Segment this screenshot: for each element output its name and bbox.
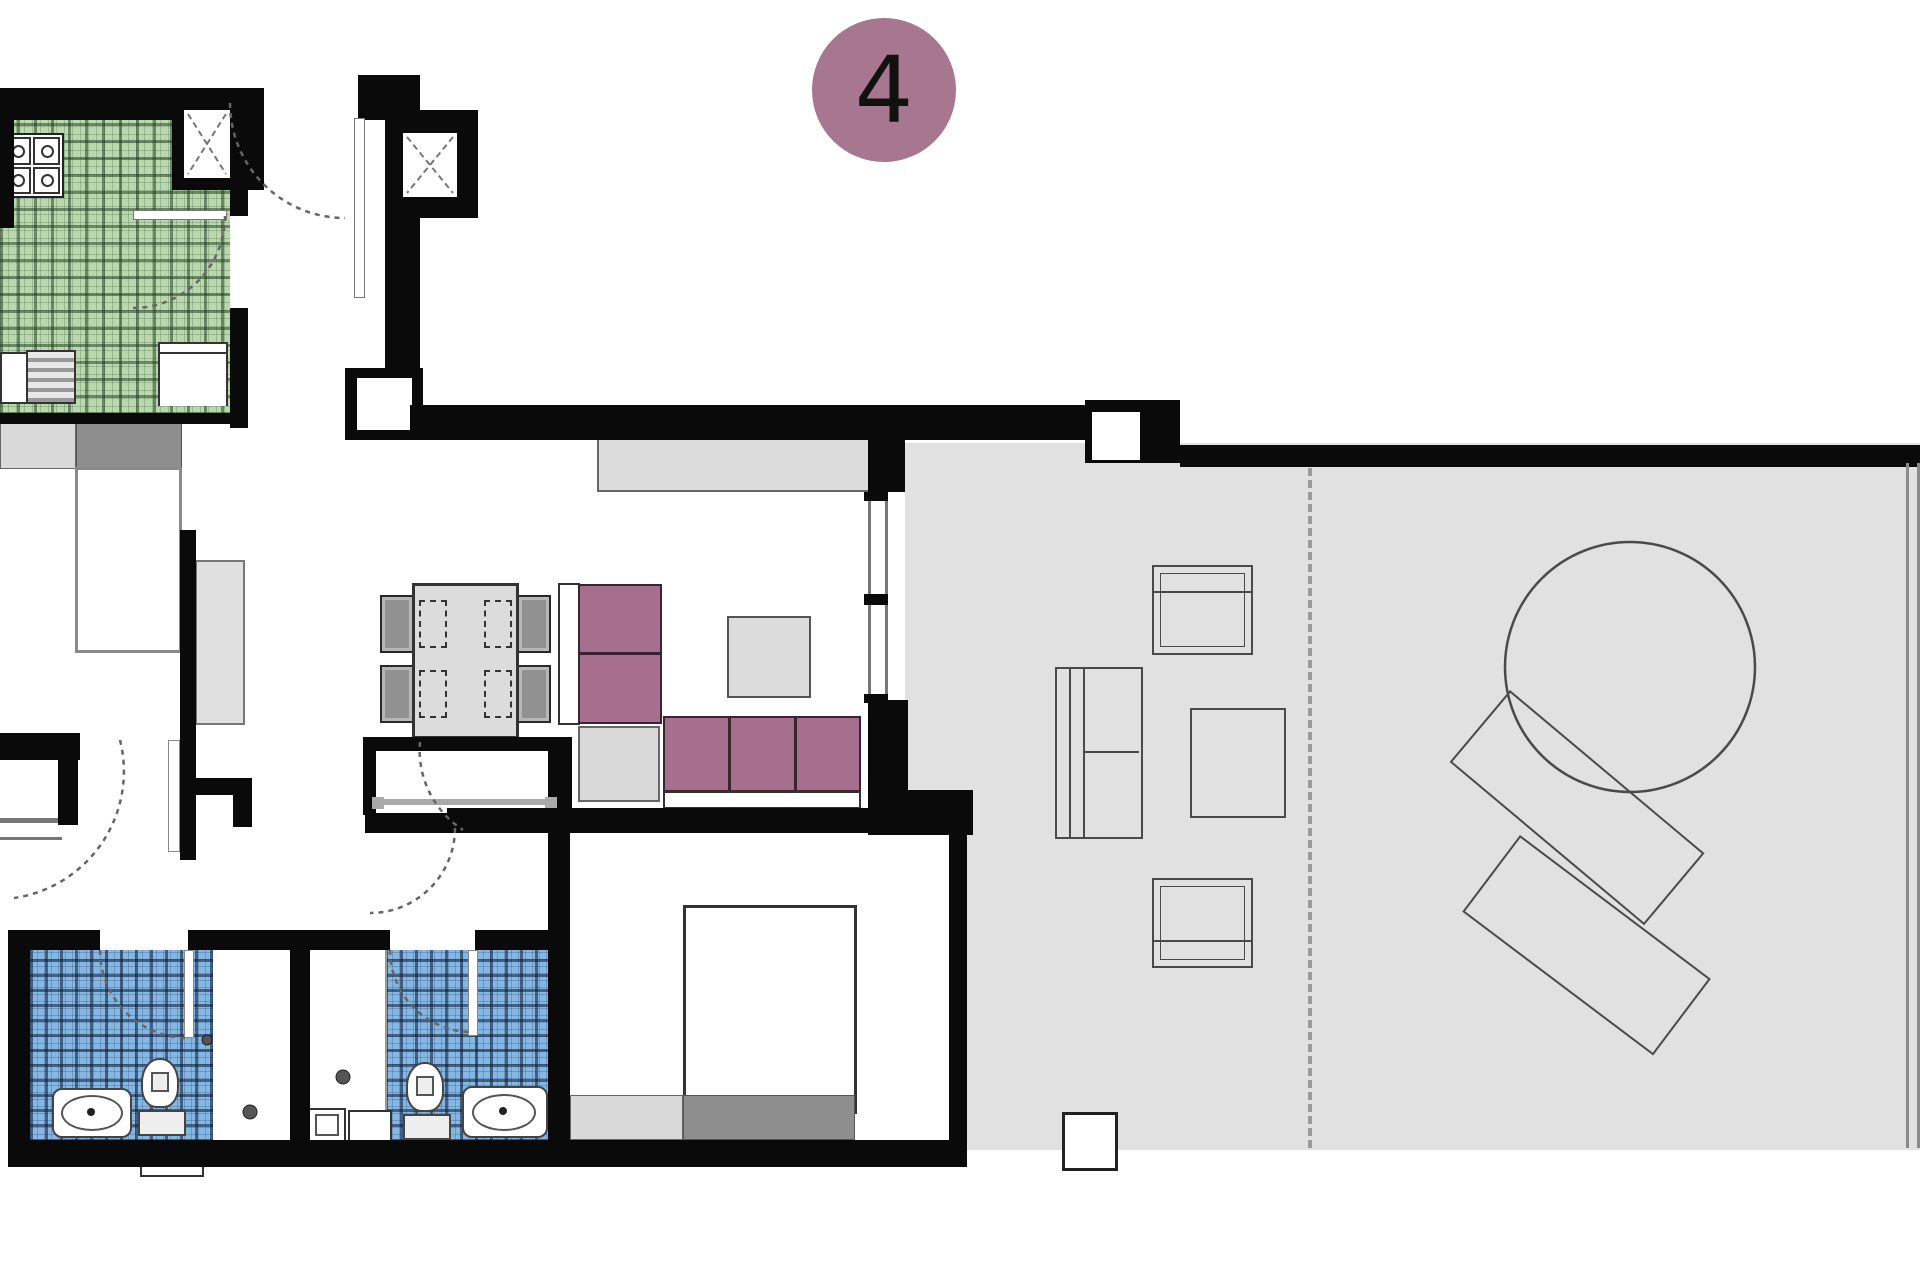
door-leaf-bedroom-1	[168, 740, 180, 852]
burner-icon	[33, 167, 60, 195]
wall-closet-top	[0, 733, 80, 760]
kitchen-sink	[0, 352, 28, 404]
terrace-side-table	[1190, 708, 1286, 818]
pony-wall-top	[363, 737, 570, 751]
sofa-cushion	[663, 716, 730, 792]
niche-entry	[357, 378, 412, 430]
wardrobe-bedroom-1	[195, 560, 245, 725]
terrace-pillar	[1092, 412, 1140, 460]
wall-bedroom1-east	[180, 530, 196, 860]
pony-wall-right	[557, 737, 572, 815]
duct-kitchen	[184, 110, 230, 178]
wall-hall-L-b	[233, 795, 252, 827]
kitchen-counter-light	[0, 423, 76, 469]
window-tick	[864, 594, 888, 605]
terrace-niche	[1062, 1112, 1118, 1171]
sofa-cushion	[795, 716, 861, 792]
toilet-bathroom-2	[403, 1062, 447, 1140]
dining-chair	[380, 665, 414, 723]
bed-bedroom-1	[75, 467, 182, 653]
terrace-divider-dashed	[1308, 468, 1312, 1148]
bed-bedroom-2	[683, 905, 857, 1114]
sofa-cushion	[729, 716, 796, 792]
side-table	[578, 726, 660, 802]
wall-kitchen-bottom	[0, 413, 230, 424]
sofa-cushion	[578, 584, 662, 654]
terrace-floor-lower	[967, 830, 1920, 1150]
window-bedroom-1	[0, 818, 62, 840]
wall-bottom-main	[8, 1140, 967, 1167]
wall-closet-side	[58, 760, 78, 825]
terrace-railing	[1906, 463, 1920, 1148]
wall-living-top	[410, 405, 1085, 440]
drain-icon	[243, 1105, 257, 1119]
bedroom-2-window-sill-light	[570, 1095, 683, 1140]
kitchen-drainer	[26, 350, 76, 404]
sofa-cushion	[578, 653, 662, 724]
dining-chair	[517, 665, 551, 723]
wall-bath-top-3	[475, 930, 557, 950]
wall-terrace-top	[1180, 445, 1920, 467]
living-window-ledge	[597, 437, 870, 492]
duct-entry	[403, 133, 457, 197]
terrace-floor-upper	[905, 443, 1920, 705]
kitchen-appliance	[158, 342, 228, 406]
dining-table	[412, 583, 519, 739]
wall-corridor	[290, 943, 310, 1143]
burner-icon	[33, 137, 60, 165]
dining-chair	[380, 595, 414, 653]
wall-bedroom2-east	[949, 830, 967, 1165]
wall-kitchen-right-lower	[230, 308, 248, 428]
toilet-bathroom-1	[138, 1058, 182, 1136]
wall-bath1-left	[8, 930, 30, 1167]
coffee-table	[727, 616, 811, 698]
dining-chair	[517, 595, 551, 653]
window-tick	[864, 492, 888, 501]
terrace-armchair-2	[1152, 878, 1253, 968]
wall-hall-L-a	[182, 778, 252, 795]
terrace-armchair-1	[1152, 565, 1253, 655]
unit-badge[interactable]: 4	[812, 18, 956, 162]
door-leaf-vestibule	[365, 813, 449, 833]
wall-window-pillar	[868, 437, 905, 492]
sofa-backrest-horizontal	[663, 791, 861, 809]
entry-side-panel	[354, 118, 365, 298]
washer-box	[308, 1108, 346, 1142]
bath1-door-leaf	[184, 950, 194, 1038]
door-arc-vestibule	[370, 828, 455, 913]
terrace-sofa	[1055, 667, 1143, 839]
wall-kitchen-right-upper	[230, 185, 248, 216]
wall-living-east-corner	[868, 790, 973, 835]
kitchen-door-leaf	[133, 210, 227, 220]
drain-icon	[336, 1070, 350, 1084]
pony-wall-sill	[376, 799, 557, 805]
window-tick	[864, 694, 888, 703]
sill-block	[372, 797, 384, 809]
wall	[0, 88, 190, 120]
kitchen-counter-dark	[76, 423, 182, 469]
wall-bath-top-2	[188, 930, 390, 950]
bedroom-2-window-sill-dark	[683, 1095, 855, 1140]
washbasin-bathroom-1	[52, 1088, 132, 1138]
bath2-door-leaf	[468, 950, 478, 1036]
washbasin-bathroom-2	[462, 1086, 548, 1138]
sofa-backrest-vertical	[558, 583, 580, 725]
floor-plan: 4	[0, 0, 1920, 1280]
